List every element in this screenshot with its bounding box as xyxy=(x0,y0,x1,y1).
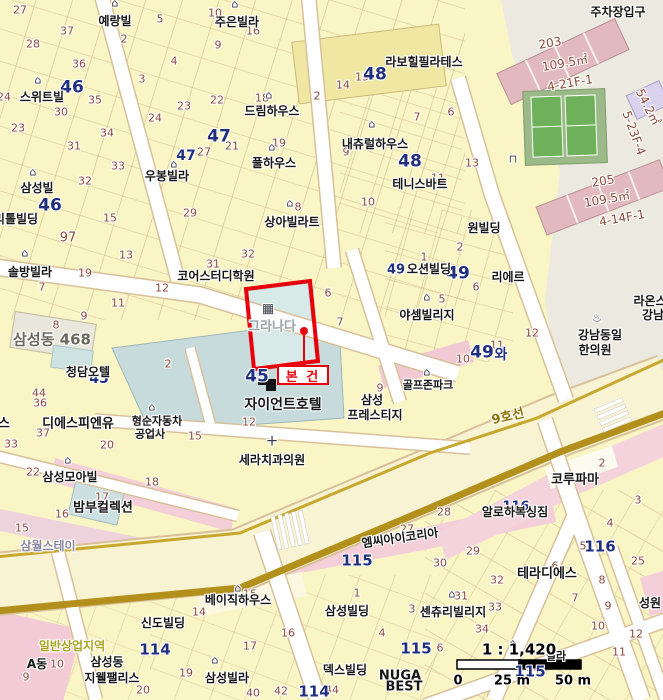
map-label: 3 xyxy=(139,74,146,85)
map-label: 10 xyxy=(591,621,605,632)
map-label: 30 xyxy=(433,558,447,569)
map-label: 45 xyxy=(245,369,269,386)
map-label: 청담오텔 xyxy=(66,366,110,378)
house-icon: ⌂ xyxy=(22,248,29,259)
map-label: 16 xyxy=(281,628,295,639)
oriental-clinic-icon: ♨ xyxy=(592,313,602,324)
map-label: 47 xyxy=(207,129,231,146)
map-label: 7 xyxy=(414,112,421,123)
map-label: 삼성동 468 xyxy=(13,333,91,348)
house-icon: ⌂ xyxy=(171,159,178,170)
map-label: 삼성동 xyxy=(90,656,123,668)
scale-tick-25: 25 m xyxy=(494,675,530,688)
map-label: 6 xyxy=(448,107,455,118)
scale-tick-50: 50 m xyxy=(555,675,591,688)
map-label: 27 xyxy=(197,147,211,158)
golf-icon: ⌂ xyxy=(424,367,431,378)
map-label: 오션빌딩 xyxy=(407,263,451,275)
map-label: 5-23F-4 xyxy=(620,109,647,156)
map-label: 13 xyxy=(119,250,133,261)
map-label: 라온스 xyxy=(633,295,663,307)
map-label: 31 xyxy=(206,259,220,270)
house-icon: ⌂ xyxy=(369,119,376,130)
map-label: 10 xyxy=(50,659,64,670)
map-label: 47 xyxy=(176,149,195,163)
house-icon: ⌂ xyxy=(35,75,42,86)
map-label: 31 xyxy=(67,141,81,152)
map-label: 삼성빌 xyxy=(20,182,53,194)
map-label: 30 xyxy=(54,107,68,118)
house-icon: ⌂ xyxy=(266,90,273,101)
map-label: 35 xyxy=(88,95,102,106)
map-label: 지웰팰리스 xyxy=(84,672,139,684)
map-label: 42 xyxy=(274,686,288,697)
map-label: 덱스빌딩 xyxy=(323,664,367,676)
map-label: 베이직하우스 xyxy=(205,594,271,606)
map-label: 강남 xyxy=(642,309,663,321)
map-label: 10 xyxy=(361,197,375,208)
map-label: 5 xyxy=(157,14,164,25)
map-label: 7 xyxy=(337,317,344,328)
map-label: 스위트빌 xyxy=(20,91,64,103)
map-label: 4 xyxy=(607,518,614,529)
map-label: 삼성빌딩 xyxy=(325,605,369,617)
map-label: 12 xyxy=(155,283,169,294)
map-label: 드림하우스 xyxy=(244,105,299,117)
map-label: 109.5㎡ xyxy=(541,53,589,73)
map-label: 25 xyxy=(631,556,645,567)
map-label: 14 xyxy=(192,607,206,618)
map-label: 12 xyxy=(525,328,539,339)
map-label: 4-14F-1 xyxy=(598,208,645,228)
house-icon: ⌂ xyxy=(65,455,72,466)
map-label: 한의원 xyxy=(578,344,611,356)
map-label: 삼성빌라 xyxy=(205,672,249,684)
map-label: 신도빌딩 xyxy=(141,617,185,629)
map-label: 115 xyxy=(341,554,372,569)
map-label: 12 xyxy=(629,629,643,640)
map-label: 20 xyxy=(100,440,114,451)
map-label: 18 xyxy=(145,477,159,488)
map-label: 예랑빌 xyxy=(98,15,131,27)
map-label: 24 xyxy=(0,92,11,103)
house-icon: ⌂ xyxy=(232,0,239,10)
map-label: 3 xyxy=(635,495,642,506)
map-label: 114 xyxy=(139,643,170,658)
map-label: 19 xyxy=(78,268,92,279)
map-label: 스 xyxy=(0,418,10,431)
map-label: 알로하복싱짐 xyxy=(482,506,548,518)
map-label: 15 xyxy=(188,431,202,442)
map-label: 12 xyxy=(242,417,256,428)
map-label: 9 xyxy=(377,383,384,394)
map-label: 삼월스테이 xyxy=(20,540,75,552)
map-label: 2 xyxy=(599,458,606,469)
map-label: 22 xyxy=(210,95,224,106)
map-label: 풀하우스 xyxy=(252,157,296,169)
map-label: 원빌딩 xyxy=(467,222,500,234)
car-repair-icon: ⌂ xyxy=(149,402,156,413)
map-label: 48 xyxy=(398,154,422,171)
map-label: 자이언트호텔 xyxy=(244,398,321,412)
map-label: 2 xyxy=(314,91,321,102)
map-label: 28 xyxy=(26,39,40,50)
map-labels: 2737283635302423313433322423222510169432… xyxy=(0,0,663,700)
map-label: 16 xyxy=(55,509,69,520)
map-label: 상아빌라트 xyxy=(264,216,319,228)
house-icon: ⌂ xyxy=(424,292,431,303)
map-label: 7 xyxy=(572,593,579,604)
map-label: 32 xyxy=(78,176,92,187)
map-label: 13 xyxy=(465,158,479,169)
map-label: 9 xyxy=(605,601,612,612)
map-label: 11 xyxy=(612,647,626,658)
map-label: 디에스피엔유 xyxy=(42,418,114,431)
map-label: 8 xyxy=(53,320,60,331)
map-label: 34 xyxy=(100,128,114,139)
map-label: BEST xyxy=(385,681,422,694)
map-label: 2 xyxy=(121,34,128,45)
house-icon: ⌂ xyxy=(112,0,119,9)
map-label: 야셈빌리지 xyxy=(399,309,454,321)
house-icon: ⌂ xyxy=(449,589,456,600)
map-label: 14 xyxy=(336,80,350,91)
map-label: 강남동일 xyxy=(578,329,622,341)
map-label: 골프존파크 xyxy=(403,380,454,391)
map-label: 테라디에스 xyxy=(517,568,577,581)
map-label: 일반상업지역 xyxy=(39,640,105,652)
map-label: 6 xyxy=(437,643,444,654)
map-label: 성원 xyxy=(639,597,661,609)
map-label: 29 xyxy=(466,546,480,557)
map-label: 49 xyxy=(387,264,405,277)
map-label: 삼성모아빌 xyxy=(42,471,97,483)
map-label: 3 xyxy=(409,604,416,615)
map-label: 32 xyxy=(241,249,255,260)
map-label: 114 xyxy=(298,685,329,700)
map-label: 1 xyxy=(421,252,428,263)
map-label: 6 xyxy=(473,282,480,293)
map-label: 코루파마 xyxy=(551,474,599,487)
house-icon: ⌂ xyxy=(287,198,294,209)
map-label: 203 xyxy=(538,35,563,51)
map-label: 27 xyxy=(13,5,27,16)
map-label: 48 xyxy=(363,67,387,84)
map-label: 33 xyxy=(488,602,502,613)
house-icon: ⌂ xyxy=(212,655,219,666)
map-label: 9 xyxy=(81,311,88,322)
map-label: 29 xyxy=(183,208,197,219)
map-label: 2 xyxy=(165,359,172,370)
map-label: 프레스티지 xyxy=(347,409,402,421)
map-label: 코어스터디학원 xyxy=(177,270,254,282)
map-label: 8 xyxy=(295,202,302,213)
scale-tick-0: 0 xyxy=(453,675,462,688)
map-label: 4 xyxy=(171,56,178,67)
map-label: 라보힐필라테스 xyxy=(385,56,462,68)
map-label: 2 xyxy=(457,242,464,253)
map-label: 6 xyxy=(325,288,332,299)
map-label: 엠씨아이코리아 xyxy=(361,527,439,550)
map-label: 9호선 xyxy=(490,407,525,427)
map-label: 37 xyxy=(60,26,74,37)
parking-entrance-icon: ⊓ xyxy=(509,154,518,165)
map-label: A동 xyxy=(27,658,47,670)
map-label: 4-21F-1 xyxy=(546,73,593,93)
map-label: 97 xyxy=(60,232,77,245)
map-label: 40 xyxy=(246,688,260,699)
map-label: 23 xyxy=(11,123,25,134)
map-label: 센츄리빌리지 xyxy=(420,606,486,618)
map-label: 와 xyxy=(495,348,508,362)
scale-ratio: 1 : 1,420 xyxy=(482,643,556,658)
house-icon: ⌂ xyxy=(30,167,37,178)
map-label: 밤부컬렉션 xyxy=(73,502,133,515)
map-label: 31 xyxy=(454,591,468,602)
map-label: 8 xyxy=(599,575,606,586)
map-label: 리톨빌딩 xyxy=(0,213,38,225)
map-label: 리에르 xyxy=(491,271,524,283)
map-label: 109.5㎡ xyxy=(583,189,631,209)
map-label: 형순자동차 xyxy=(132,416,183,427)
map-label: 46 xyxy=(38,198,62,215)
map-label: 115 xyxy=(400,642,431,657)
map-label: 205 xyxy=(591,173,616,189)
map-label: 23 xyxy=(177,101,191,112)
map-label: 33 xyxy=(4,439,18,450)
map-label: 32 xyxy=(490,575,504,586)
hospital-cross-icon: + xyxy=(266,434,279,449)
map-label: 그라나다 xyxy=(248,321,296,334)
map-label: 49 xyxy=(470,345,494,362)
map-label: 20 xyxy=(136,685,150,696)
map-label: 4 xyxy=(379,628,386,639)
shop-icon: ⌂ xyxy=(235,583,242,594)
house-icon: ⌂ xyxy=(269,142,276,153)
map-label: 17 xyxy=(243,641,257,652)
map-label: 주차장입구 xyxy=(590,6,645,18)
map-label: 36 xyxy=(72,59,86,70)
map-label: 공업사 xyxy=(135,429,165,440)
map-canvas[interactable]: 2737283635302423313433322423222510169432… xyxy=(0,0,663,700)
map-label: 33 xyxy=(111,161,125,172)
map-label: 11 xyxy=(111,298,125,309)
map-label: 28 xyxy=(437,507,451,518)
map-label: 24 xyxy=(148,113,162,124)
subject-label: 본 건 xyxy=(277,365,329,385)
map-label: 22 xyxy=(26,467,40,478)
map-label: 세라치과의원 xyxy=(239,454,305,466)
map-label: 34 xyxy=(475,624,489,635)
building-icon: ▦ xyxy=(262,303,274,316)
map-label: 7 xyxy=(39,282,46,293)
map-label: 116 xyxy=(584,540,615,555)
map-label: 삼성 xyxy=(361,394,383,406)
map-label: 내츄럴하우스 xyxy=(342,138,408,150)
map-label: 1 xyxy=(354,588,361,599)
map-label: 솔방빌라 xyxy=(8,266,52,278)
map-label: 9 xyxy=(215,40,222,51)
map-label: 54.2㎡ xyxy=(634,87,662,127)
map-label: 10 xyxy=(456,354,470,365)
map-label: 15 xyxy=(103,213,117,224)
map-label: 15 xyxy=(15,523,29,534)
map-label: 19 xyxy=(179,668,193,679)
map-label: 테니스바트 xyxy=(392,178,447,190)
map-label: 우봉빌라 xyxy=(145,170,189,182)
map-label: 9 xyxy=(23,672,30,683)
map-label: 36 xyxy=(33,398,47,409)
map-label: 5 xyxy=(439,294,446,305)
map-label: 주은빌라 xyxy=(215,16,259,28)
